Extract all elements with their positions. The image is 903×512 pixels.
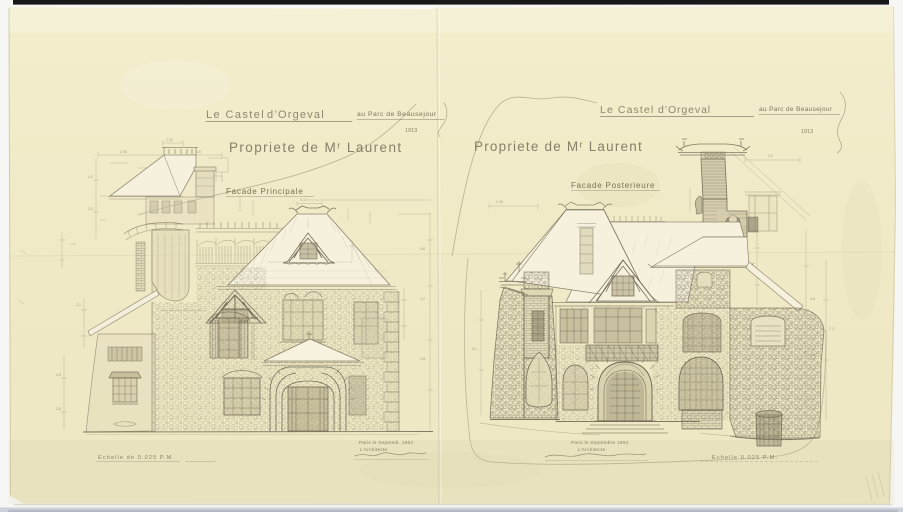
svg-text:1.6: 1.6	[196, 150, 201, 154]
svg-text:L’Architecte: L’Architecte	[360, 447, 387, 452]
svg-text:Facade Posterieure: Facade Posterieure	[571, 181, 655, 190]
svg-text:1913: 1913	[405, 128, 417, 134]
svg-text:Le Castel: Le Castel	[206, 109, 265, 121]
svg-text:2.0: 2.0	[768, 154, 773, 158]
svg-text:1913: 1913	[801, 129, 813, 135]
svg-text:5.6: 5.6	[420, 247, 425, 251]
svg-text:Echelle de 0.025 P.M.: Echelle de 0.025 P.M.	[98, 455, 175, 461]
svg-text:au Parc de Beausejour: au Parc de Beausejour	[357, 111, 437, 118]
svg-text:7.2: 7.2	[829, 327, 834, 331]
svg-text:au Parc de Beausejour: au Parc de Beausejour	[759, 106, 833, 113]
svg-text:1.45: 1.45	[496, 200, 503, 204]
svg-text:Echelle 0.025 P.M.: Echelle 0.025 P.M.	[712, 455, 778, 461]
svg-text:2.8: 2.8	[56, 407, 61, 411]
svg-text:4.6: 4.6	[810, 297, 815, 301]
svg-text:Paris le Septembre 1904: Paris le Septembre 1904	[571, 440, 629, 445]
svg-text:L’Architecte: L’Architecte	[578, 447, 605, 452]
svg-text:5.1: 5.1	[472, 347, 477, 351]
svg-text:2.2: 2.2	[76, 303, 81, 307]
svg-text:d’Orgeval: d’Orgeval	[267, 109, 325, 121]
svg-text:3.8: 3.8	[420, 357, 425, 361]
svg-text:4.2: 4.2	[420, 297, 425, 301]
svg-text:1.20: 1.20	[166, 138, 173, 142]
svg-text:Le Castel: Le Castel	[600, 104, 654, 116]
svg-text:3.2: 3.2	[88, 207, 93, 211]
svg-text:2.40: 2.40	[120, 150, 127, 154]
svg-text:3.17: 3.17	[300, 198, 307, 202]
svg-text:Paris le Septemb. 1904: Paris le Septemb. 1904	[359, 440, 413, 445]
svg-text:Propriete de Mʳ Laurent: Propriete de Mʳ Laurent	[229, 140, 403, 155]
svg-text:Propriete de Mʳ Laurent: Propriete de Mʳ Laurent	[474, 139, 643, 154]
svg-text:Facade Principale: Facade Principale	[226, 187, 304, 196]
svg-text:d’Orgeval: d’Orgeval	[658, 104, 711, 116]
svg-text:4.5: 4.5	[56, 373, 61, 377]
svg-text:4.0: 4.0	[88, 175, 93, 179]
